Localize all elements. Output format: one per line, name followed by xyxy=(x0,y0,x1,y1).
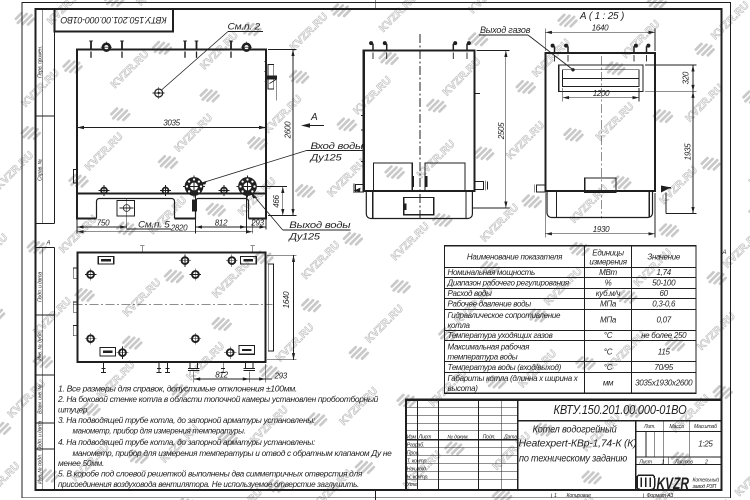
svg-text:2600: 2600 xyxy=(284,121,293,139)
svg-text:50-100: 50-100 xyxy=(652,279,676,288)
svg-text:812: 812 xyxy=(215,219,228,228)
svg-text:А: А xyxy=(46,241,51,247)
svg-text:МВт: МВт xyxy=(599,268,617,277)
svg-text:Единицы: Единицы xyxy=(592,249,624,258)
svg-text:812: 812 xyxy=(215,370,228,379)
svg-text:0,07: 0,07 xyxy=(657,316,672,325)
svg-text:°С: °С xyxy=(604,347,613,356)
svg-text:°С: °С xyxy=(604,331,613,340)
svg-text:менее 50мм.: менее 50мм. xyxy=(58,459,104,468)
svg-text:1,74: 1,74 xyxy=(657,268,672,277)
svg-text:1935: 1935 xyxy=(684,143,693,160)
svg-text:Рабочее давление воды: Рабочее давление воды xyxy=(448,300,532,309)
svg-text:высота): высота) xyxy=(448,384,479,393)
svg-text:320: 320 xyxy=(682,71,691,84)
svg-text:МПа: МПа xyxy=(600,316,617,325)
svg-text:А: А xyxy=(310,112,318,123)
svg-text:Выход газов: Выход газов xyxy=(480,25,531,35)
svg-text:Взам. инв. №: Взам. инв. № xyxy=(38,384,44,414)
svg-text:Подп. и дата: Подп. и дата xyxy=(38,272,44,302)
svg-text:Инв. № дубл.: Инв. № дубл. xyxy=(38,331,44,361)
svg-text:Листов: Листов xyxy=(674,459,693,465)
svg-text:293: 293 xyxy=(274,371,288,380)
svg-text:Диапазон рабочего регулировани: Диапазон рабочего регулирования xyxy=(447,279,570,288)
svg-text:Котельный: Котельный xyxy=(693,477,720,484)
svg-text:Перв. примен.: Перв. примен. xyxy=(38,46,44,78)
svg-text:Н. контр.: Н. контр. xyxy=(407,474,429,480)
svg-text:Ду125: Ду125 xyxy=(309,153,342,164)
svg-text:Heatexpert-КВр-1,74-К (К): Heatexpert-КВр-1,74-К (К) xyxy=(519,439,637,450)
svg-text:Изм: Изм xyxy=(407,434,417,440)
svg-text:Справ. №: Справ. № xyxy=(38,158,44,181)
svg-text:293: 293 xyxy=(250,219,264,228)
svg-text:Пров.: Пров. xyxy=(407,450,420,456)
svg-text:См.п. 5: См.п. 5 xyxy=(138,220,171,230)
svg-text:Максимальная рабочая: Максимальная рабочая xyxy=(448,343,531,352)
svg-text:70/95: 70/95 xyxy=(654,363,673,372)
svg-text:А ( 1 : 25 ): А ( 1 : 25 ) xyxy=(579,11,624,22)
svg-text:1:25: 1:25 xyxy=(698,440,713,449)
svg-text:1200: 1200 xyxy=(593,89,610,98)
svg-text:3035х1930х2600: 3035х1930х2600 xyxy=(635,379,693,388)
svg-text:манометр, прибор для измерения: манометр, прибор для измерения температу… xyxy=(73,449,393,458)
svg-text:Габариты котла (длинна х ширин: Габариты котла (длинна х ширина х xyxy=(448,374,579,383)
svg-text:KVZR: KVZR xyxy=(657,475,690,493)
svg-text:Температура уходящих газов: Температура уходящих газов xyxy=(448,331,553,340)
svg-text:измерения: измерения xyxy=(589,258,627,267)
svg-text:Ду125: Ду125 xyxy=(288,232,321,243)
svg-text:Утв.: Утв. xyxy=(407,482,418,488)
svg-text:завод РЗП: завод РЗП xyxy=(692,484,717,490)
svg-text:Лист: Лист xyxy=(638,459,652,465)
svg-text:КВТУ.150.201.00.000-01ВО: КВТУ.150.201.00.000-01ВО xyxy=(554,403,687,417)
svg-text:Наименование показателя: Наименование показателя xyxy=(467,253,563,262)
svg-text:1640: 1640 xyxy=(282,291,291,308)
svg-text:2505: 2505 xyxy=(497,122,506,140)
svg-text:Гидравлическое сопротивление: Гидравлическое сопротивление xyxy=(448,311,562,320)
svg-text:Копировал: Копировал xyxy=(567,493,591,499)
svg-text:Номинальная мощность: Номинальная мощность xyxy=(448,268,536,277)
svg-text:КВТУ.150.201.00.000-01ВО: КВТУ.150.201.00.000-01ВО xyxy=(61,15,167,25)
svg-text:1640: 1640 xyxy=(592,24,609,33)
svg-text:куб.м/ч: куб.м/ч xyxy=(596,289,621,298)
svg-text:°С: °С xyxy=(604,363,613,372)
svg-text:присоединения воздуховода вент: присоединения воздуховода вентилятора. Н… xyxy=(58,480,359,489)
svg-text:Лист: Лист xyxy=(418,434,432,440)
svg-text:3035: 3035 xyxy=(163,119,180,128)
svg-text:Масса: Масса xyxy=(669,424,684,430)
svg-text:Температура воды (вход/выход): Температура воды (вход/выход) xyxy=(448,363,562,372)
svg-text:Лит.: Лит. xyxy=(643,424,655,430)
svg-text:60: 60 xyxy=(660,289,669,298)
svg-text:466: 466 xyxy=(272,194,281,207)
svg-text:Выход воды: Выход воды xyxy=(289,220,350,231)
svg-text:Значение: Значение xyxy=(647,253,681,262)
svg-text:1930: 1930 xyxy=(593,225,610,234)
svg-text:МПа: МПа xyxy=(600,300,617,309)
svg-text:4. На подводящей трубе котла,: 4. На подводящей трубе котла, до запорно… xyxy=(58,438,315,447)
svg-text:5. В коробе под слоевой решетк: 5. В коробе под слоевой решеткой выполне… xyxy=(58,470,363,479)
svg-text:Инв. № подл.: Инв. № подл. xyxy=(38,454,44,484)
svg-text:мм: мм xyxy=(603,379,614,388)
svg-text:Нач.отд.: Нач.отд. xyxy=(407,466,427,472)
svg-text:2: 2 xyxy=(704,459,708,465)
svg-text:Подп.: Подп. xyxy=(483,434,496,440)
svg-text:115: 115 xyxy=(658,347,671,356)
svg-text:штуцер.: штуцер. xyxy=(58,406,89,415)
svg-text:%: % xyxy=(605,279,612,288)
svg-text:А: А xyxy=(722,250,727,256)
svg-text:Масштаб: Масштаб xyxy=(694,424,718,430)
svg-text:по техническому заданию: по техническому заданию xyxy=(519,453,628,464)
svg-text:Т. контр.: Т. контр. xyxy=(407,458,428,464)
svg-text:См.п. 2: См.п. 2 xyxy=(228,22,261,32)
svg-text:2820: 2820 xyxy=(170,224,188,233)
svg-text:1: 1 xyxy=(554,493,557,499)
svg-text:Формат А3: Формат А3 xyxy=(647,493,674,499)
svg-text:750: 750 xyxy=(97,219,110,228)
svg-text:№ докум.: № докум. xyxy=(447,434,468,440)
svg-text:Котел водогрейный: Котел водогрейный xyxy=(533,425,618,436)
svg-text:Разраб.: Разраб. xyxy=(407,442,424,448)
svg-text:котла: котла xyxy=(448,321,471,330)
svg-text:Подп. и дата: Подп. и дата xyxy=(38,421,44,451)
svg-text:3. На подводящей трубе котла,: 3. На подводящей трубе котла, до запорно… xyxy=(58,416,315,425)
svg-text:1: 1 xyxy=(662,459,665,465)
svg-text:не более 250: не более 250 xyxy=(641,331,687,340)
svg-text:температура воды: температура воды xyxy=(448,353,518,362)
svg-text:Расход воды: Расход воды xyxy=(448,289,492,298)
svg-text:манометр, прибор для измерения: манометр, прибор для измерения температу… xyxy=(73,427,246,436)
svg-text:2. На боковой стенке котла в о: 2. На боковой стенке котла в области топ… xyxy=(57,395,379,404)
svg-text:Дата: Дата xyxy=(503,434,517,440)
svg-text:0,3-0,6: 0,3-0,6 xyxy=(652,300,676,309)
svg-text:1. Все размеры для справок, до: 1. Все размеры для справок, допустимые о… xyxy=(58,385,297,394)
